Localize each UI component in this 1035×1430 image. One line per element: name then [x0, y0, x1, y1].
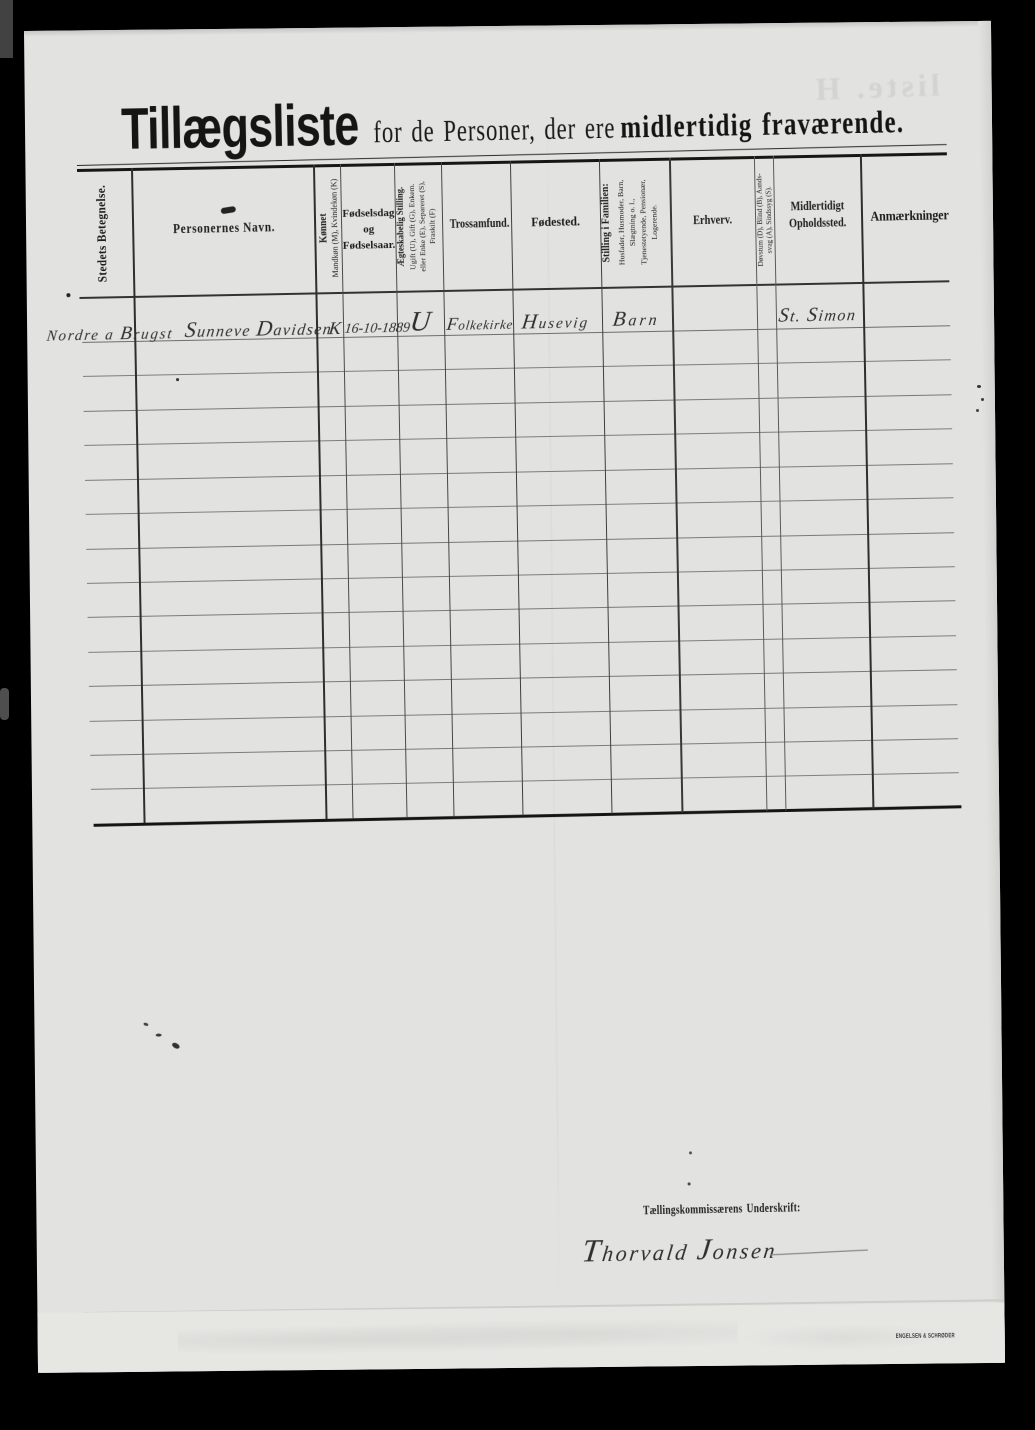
svg-text:Barn: Barn [612, 306, 662, 331]
svg-text:Nordre a Brugst: Nordre a Brugst [45, 322, 175, 345]
svg-text:Folkekirke: Folkekirke [445, 313, 515, 334]
svg-text:Husevig: Husevig [520, 308, 591, 333]
svg-text:U: U [408, 306, 434, 337]
svg-text:Sunneve Davidsen: Sunneve Davidsen [184, 314, 334, 342]
svg-text:16-10-1889: 16-10-1889 [344, 320, 411, 337]
svg-text:Thorvald Jonsen: Thorvald Jonsen [580, 1229, 780, 1269]
svg-text:K: K [327, 318, 343, 338]
svg-text:St. Simon: St. Simon [777, 303, 858, 326]
